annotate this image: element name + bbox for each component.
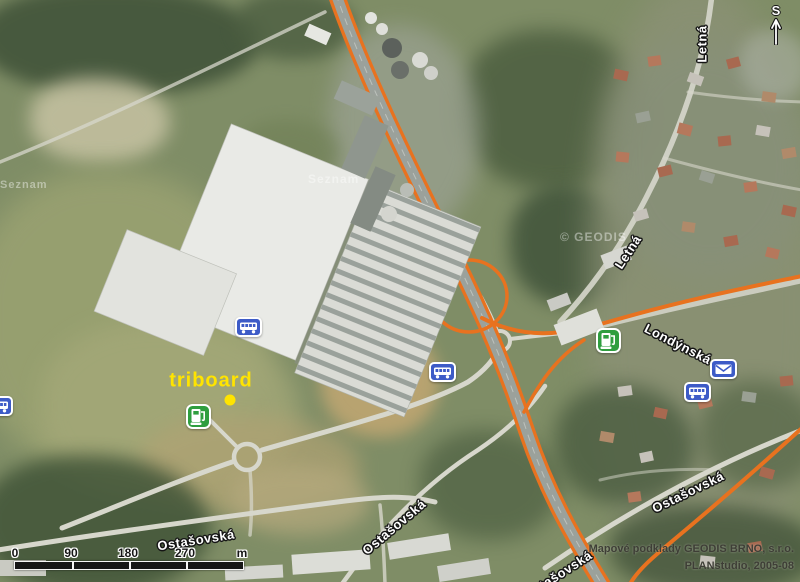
scale-unit: m	[237, 546, 248, 560]
triboard-label: triboard	[169, 370, 253, 393]
bus-stop-icon[interactable]	[235, 317, 262, 342]
bus-stop-icon[interactable]	[0, 396, 13, 421]
map-attribution: Mapové podklady GEODIS BRNO, s.r.o. PLAN…	[589, 541, 794, 576]
scale-tick: 270	[175, 546, 195, 560]
bus-stop-icon[interactable]	[684, 382, 711, 407]
north-label: S	[766, 4, 786, 17]
scale-bar-rule	[14, 561, 244, 570]
triboard-marker-dot	[225, 395, 236, 406]
attribution-line1: Mapové podklady GEODIS BRNO, s.r.o.	[589, 541, 794, 559]
scale-tick: 0	[12, 546, 19, 560]
seznam-watermark: Seznam	[308, 172, 359, 186]
map-canvas[interactable]: Seznam Seznam © GEODIS Letná Letná Londý…	[0, 0, 800, 582]
attribution-line2: PLANstudio, 2005-08	[589, 558, 794, 576]
scale-bar: 0 90 180 270 m	[10, 546, 254, 572]
scale-tick: 180	[118, 546, 138, 560]
bus-stop-icon[interactable]	[429, 362, 456, 387]
north-arrow-icon	[770, 32, 782, 49]
fuel-station-icon[interactable]	[186, 404, 211, 434]
north-indicator: S	[766, 4, 786, 49]
scale-tick: 90	[64, 546, 77, 560]
shopping-center-building	[94, 103, 481, 434]
street-label-letna: Letná	[695, 25, 710, 62]
fuel-station-icon[interactable]	[596, 328, 621, 358]
geodis-watermark: © GEODIS	[560, 230, 627, 244]
seznam-watermark: Seznam	[0, 179, 48, 191]
post-office-icon[interactable]	[710, 359, 737, 384]
